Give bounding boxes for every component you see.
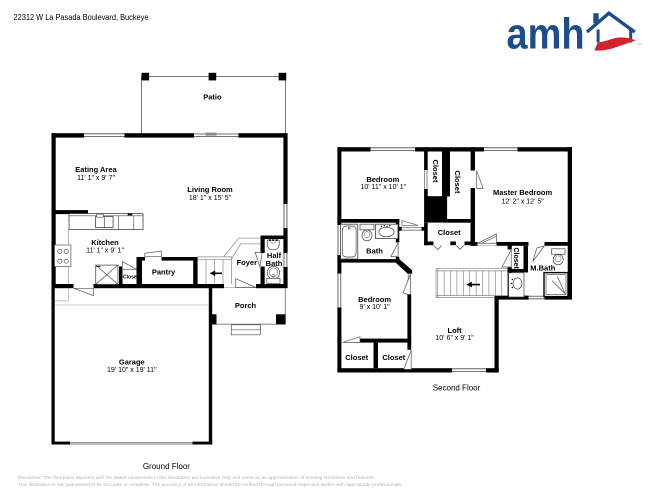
svg-text:Disclaimer: The floorplans dep: Disclaimer: The floorplans depicted and … [18,475,375,481]
svg-text:Eating Area: Eating Area [75,165,117,174]
svg-text:This illustration is not guara: This illustration is not guaranteed to b… [18,482,402,488]
svg-text:11' 1" x 9' 7": 11' 1" x 9' 7" [77,175,115,182]
svg-text:Bath: Bath [366,246,383,255]
svg-text:Foyer: Foyer [237,258,258,267]
svg-text:22312 W La Pasada Boulevard, B: 22312 W La Pasada Boulevard, Buckeye [14,13,150,22]
svg-text:Bedroom: Bedroom [366,175,399,184]
svg-text:10' 11" x 10' 1": 10' 11" x 10' 1" [360,184,406,191]
svg-text:Closet: Closet [345,353,368,362]
svg-text:Master Bedroom: Master Bedroom [493,188,553,197]
svg-text:Porch: Porch [235,301,257,310]
svg-text:12' 2" x 12' 5": 12' 2" x 12' 5" [501,198,544,205]
svg-text:Bath: Bath [266,259,283,268]
svg-text:18' 1" x 15' 5": 18' 1" x 15' 5" [189,195,232,202]
svg-text:Ground Floor: Ground Floor [143,462,190,471]
svg-text:M.Bath: M.Bath [530,263,555,272]
svg-text:Closet: Closet [438,228,461,237]
svg-text:Closet: Closet [123,274,139,280]
svg-text:Closet: Closet [512,247,519,269]
svg-text:Second Floor: Second Floor [433,383,481,392]
svg-text:amh: amh [507,9,585,58]
svg-text:Kitchen: Kitchen [91,238,119,247]
svg-text:Garage: Garage [119,357,145,366]
svg-text:Loft: Loft [448,326,463,335]
svg-text:Closet: Closet [453,171,462,194]
svg-text:TM: TM [638,42,643,46]
svg-text:9' x 10' 1": 9' x 10' 1" [360,304,391,311]
svg-text:Closet: Closet [431,160,440,183]
svg-text:Living Room: Living Room [187,185,233,194]
svg-text:Closet: Closet [382,353,405,362]
svg-text:19' 10" x 19' 11": 19' 10" x 19' 11" [107,367,157,374]
svg-text:10' 6" x 9' 1": 10' 6" x 9' 1" [435,335,474,342]
svg-text:11' 1" x 9' 1": 11' 1" x 9' 1" [86,248,124,255]
svg-text:Patio: Patio [203,93,222,102]
svg-text:Bedroom: Bedroom [358,295,391,304]
svg-text:Pantry: Pantry [152,267,176,276]
